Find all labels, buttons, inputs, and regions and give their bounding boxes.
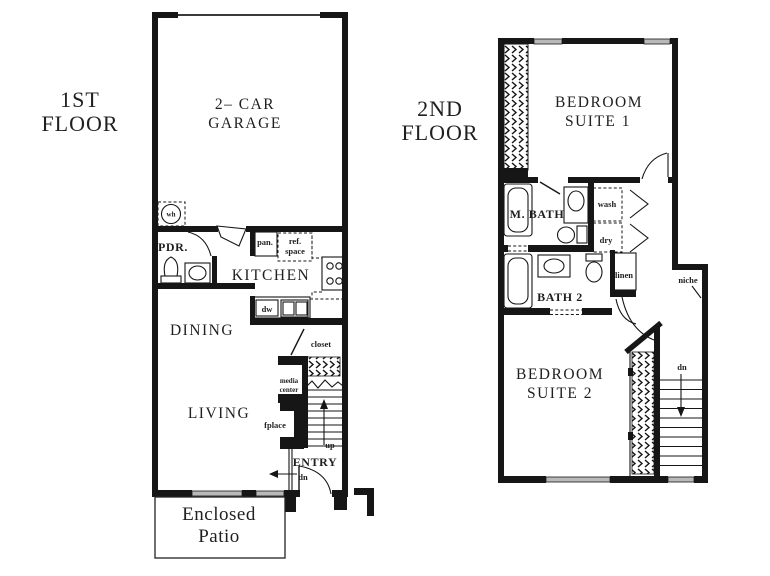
stairs-up xyxy=(306,380,343,446)
stairs-down xyxy=(626,323,702,476)
burner-icon xyxy=(336,263,342,269)
living-window xyxy=(256,491,284,496)
bath2-sink-cabinet xyxy=(538,255,570,277)
kitchen-label: KITCHEN xyxy=(232,267,311,284)
master-bath-label: M. BATH xyxy=(510,207,565,221)
water-heater: wh xyxy=(158,202,185,226)
bedroom1-window xyxy=(534,39,562,44)
patio-label-line1: Enclosed xyxy=(182,504,256,525)
niche-label: niche xyxy=(678,275,698,285)
bedroom1-door-arc xyxy=(642,153,667,179)
floor-plan-page: wh xyxy=(0,0,770,576)
burner-icon xyxy=(327,278,333,284)
pdr-label: PDR. xyxy=(158,240,188,254)
bath2-toilet-icon xyxy=(586,262,602,282)
second-floor-title-line1: 2ND xyxy=(417,96,463,121)
pantry-label: pan. xyxy=(257,237,273,247)
bedroom1-label-line2: SUITE 1 xyxy=(565,113,631,130)
dn-label: dn xyxy=(677,362,687,372)
mbath-sink-cabinet xyxy=(564,187,588,223)
closet-label: closet xyxy=(311,339,331,349)
mbath-toilet-icon xyxy=(558,227,575,243)
counter-edge-mid xyxy=(312,292,322,298)
mbath-opening-dashes xyxy=(508,246,528,251)
entry-label: ENTRY xyxy=(293,455,338,469)
stair-window xyxy=(668,477,694,482)
garage-label-line1: 2– CAR xyxy=(215,96,275,113)
laundry-door-fold xyxy=(630,190,648,218)
water-heater-label: wh xyxy=(167,211,176,219)
second-floor-plan: 2ND FLOOR BEDROOM SUITE 1 M. BATH wash d… xyxy=(401,38,708,483)
patio-label-line2: Patio xyxy=(198,526,240,547)
stair-treads xyxy=(308,390,342,446)
closet-door-leaf xyxy=(291,329,304,355)
dining-label: DINING xyxy=(170,322,234,339)
bedroom1-label-line1: BEDROOM xyxy=(555,94,643,111)
bath2-opening-dashes xyxy=(550,310,582,315)
wash-label: wash xyxy=(598,199,617,209)
dn-label: dn xyxy=(298,472,308,482)
bedroom2-slider-window xyxy=(546,477,610,482)
mbath-door-leaf xyxy=(540,182,560,194)
laundry-door-fold xyxy=(630,224,648,252)
stair-break-line xyxy=(306,380,343,388)
first-floor-title-line1: 1ST xyxy=(60,87,100,112)
linen-label: linen xyxy=(615,270,633,280)
bedroom1-wardrobe-hatch xyxy=(504,44,528,170)
bedroom1-window xyxy=(644,39,670,44)
pdr-toilet-tank-icon xyxy=(161,276,181,283)
garage-label-line2: GARAGE xyxy=(208,115,282,132)
media-center-label-line1: media xyxy=(280,377,299,385)
burner-icon xyxy=(327,263,333,269)
closet-rod-hatch xyxy=(307,357,340,376)
first-floor-title-line2: FLOOR xyxy=(41,111,118,136)
second-floor-title-line2: FLOOR xyxy=(401,120,478,145)
bath2-label: BATH 2 xyxy=(537,290,583,304)
sink-basin-icon xyxy=(283,302,294,315)
floor-plan-drawing: wh xyxy=(0,0,770,576)
pdr-door-arc xyxy=(188,232,211,256)
bedroom2-label-line1: BEDROOM xyxy=(516,366,604,383)
counter-edge-upper xyxy=(312,236,322,258)
bedroom2-closet-rod-hatch xyxy=(632,352,654,474)
dn-arrow-head xyxy=(677,407,685,417)
fireplace-label: fplace xyxy=(264,420,286,430)
entry-living-divider xyxy=(289,449,292,490)
media-center-label-line2: center xyxy=(280,386,299,394)
dishwasher-label: dw xyxy=(262,304,274,314)
dry-label: dry xyxy=(600,235,614,245)
first-floor-plan: wh xyxy=(41,12,374,558)
sink-basin-icon xyxy=(296,302,307,315)
bath2-toilet-tank xyxy=(586,254,602,261)
dn-arrow-head xyxy=(269,470,278,478)
ref-label-line2: space xyxy=(285,246,305,256)
ref-label-line1: ref. xyxy=(289,236,301,246)
patio-slider-window xyxy=(192,491,242,496)
pdr-toilet-icon xyxy=(164,257,178,276)
up-label: up xyxy=(325,440,335,450)
mbath-toilet-tank xyxy=(577,226,587,243)
living-label: LIVING xyxy=(188,405,250,422)
bedroom2-label-line2: SUITE 2 xyxy=(527,385,593,402)
niche-pointer-line xyxy=(692,286,701,298)
burner-icon xyxy=(336,278,342,284)
garage-entry-door xyxy=(217,226,246,246)
